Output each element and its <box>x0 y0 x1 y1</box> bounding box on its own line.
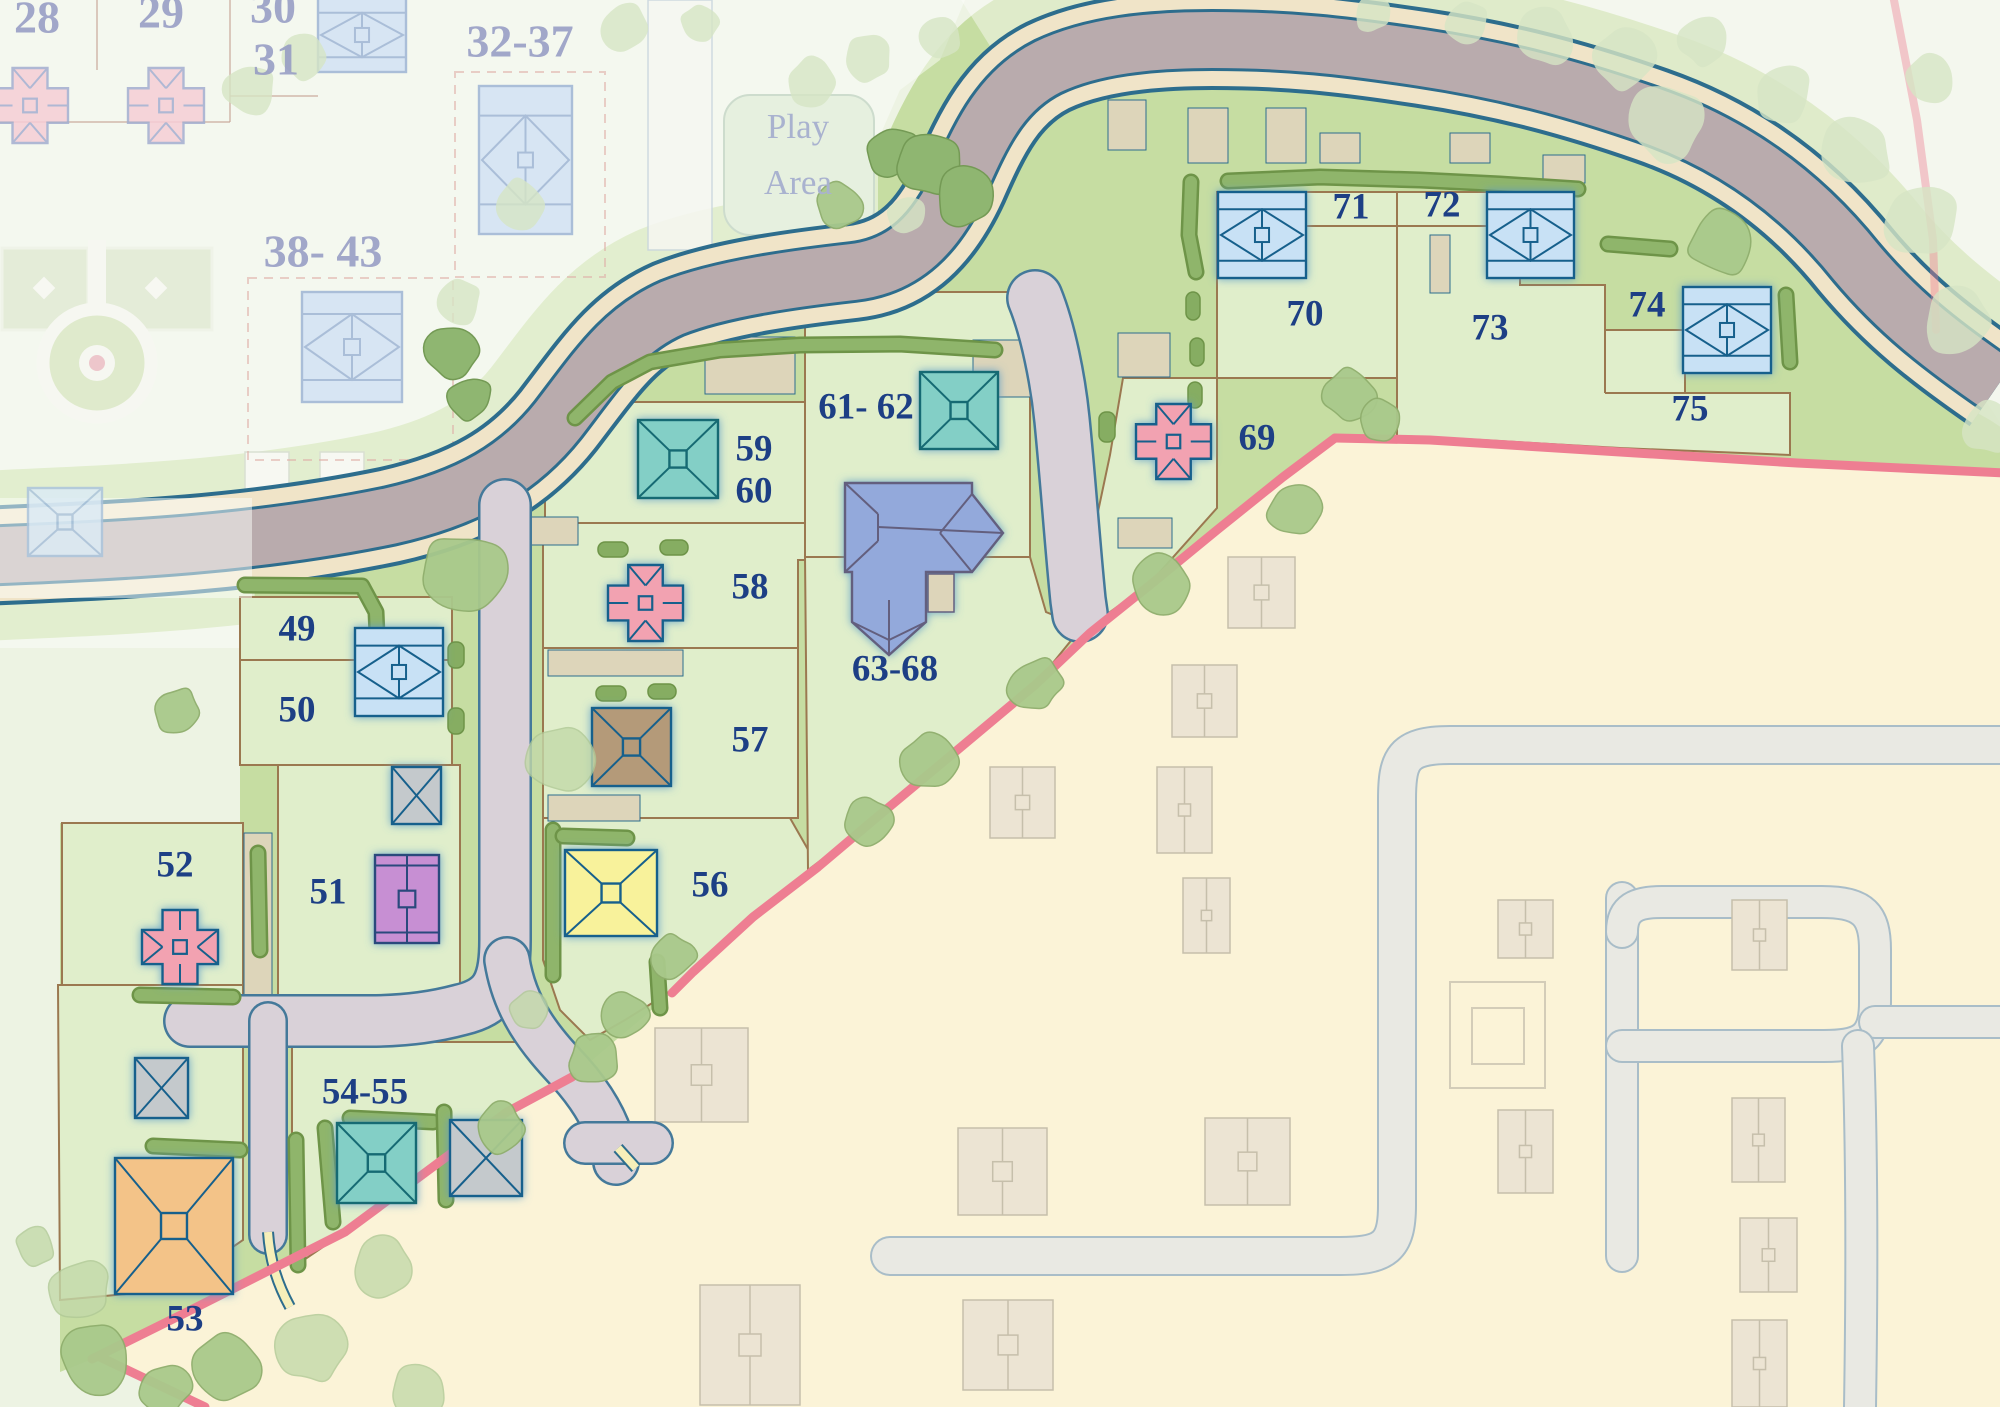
plot-label-49[interactable]: 49 <box>279 608 316 649</box>
future-house <box>963 1300 1053 1390</box>
future-house <box>1740 1218 1797 1292</box>
future-house <box>1732 1320 1787 1407</box>
existing-plot-label-28: 28 <box>14 0 60 43</box>
house-49-50[interactable] <box>355 628 443 716</box>
parking-court <box>1108 100 1146 150</box>
parking-court <box>1266 108 1306 163</box>
house-fadedblue2 <box>28 488 102 556</box>
site-plan-map: 495051525354-55565758596061- 6263-686970… <box>0 0 2000 1407</box>
future-house <box>1205 1118 1290 1205</box>
bush <box>1186 292 1200 320</box>
existing-plot-label-29: 29 <box>138 0 184 38</box>
house-74-75[interactable] <box>1683 287 1771 373</box>
future-house <box>958 1128 1047 1215</box>
existing-plot-label-32-37: 32-37 <box>466 16 573 67</box>
plot-label-50[interactable]: 50 <box>279 689 316 730</box>
future-house <box>1157 767 1212 853</box>
parking-court <box>548 650 683 676</box>
future-house <box>1183 878 1230 953</box>
house-garage-52[interactable] <box>135 1058 188 1118</box>
plot-label-56[interactable]: 56 <box>692 864 729 905</box>
parking-court <box>1320 133 1360 163</box>
plot-label-57[interactable]: 57 <box>732 719 769 760</box>
future-house <box>655 1028 748 1122</box>
plot-label-53[interactable]: 53 <box>167 1298 204 1339</box>
bush <box>596 686 626 701</box>
house-59-60[interactable] <box>638 420 718 498</box>
future-house <box>700 1285 800 1405</box>
future-house <box>1228 557 1295 628</box>
parking-court <box>1118 518 1172 548</box>
play-area-label-line2: Area <box>764 163 832 202</box>
tree <box>569 1033 617 1081</box>
house-72-73[interactable] <box>1487 192 1574 278</box>
house-70-71[interactable] <box>1218 192 1306 278</box>
parking-court <box>1430 235 1450 293</box>
future-house <box>1172 665 1237 737</box>
bush <box>598 542 628 557</box>
plot-label-73[interactable]: 73 <box>1472 307 1509 348</box>
plot-label-54-55[interactable]: 54-55 <box>322 1071 408 1112</box>
parking-court <box>1450 133 1490 163</box>
bush <box>448 642 464 668</box>
plot-label-72[interactable]: 72 <box>1424 184 1461 225</box>
bush <box>1099 412 1115 442</box>
future-house <box>1732 900 1787 970</box>
house-61-62[interactable] <box>920 372 998 449</box>
future-house <box>1732 1098 1785 1182</box>
plot-label-69[interactable]: 69 <box>1239 417 1276 458</box>
parking-court <box>548 795 640 821</box>
site-plan-svg: 495051525354-55565758596061- 6263-686970… <box>0 0 2000 1407</box>
future-house <box>1498 900 1553 958</box>
bush <box>1190 338 1204 366</box>
existing-plot-label-30: 30 <box>250 0 296 33</box>
plot-label-74[interactable]: 74 <box>1629 284 1666 325</box>
existing-plot-label-31: 31 <box>253 34 299 85</box>
parking-court <box>1118 333 1170 377</box>
house-51[interactable] <box>375 855 439 943</box>
plot-label-58[interactable]: 58 <box>732 566 769 607</box>
play-area-label-line1: Play <box>767 107 830 146</box>
bush <box>660 540 688 555</box>
plot-label-59[interactable]: 59 <box>736 428 773 469</box>
bush <box>448 708 464 734</box>
future-house <box>1498 1110 1553 1193</box>
plot-label-71[interactable]: 71 <box>1333 186 1370 227</box>
bush <box>648 684 676 699</box>
plot-label-51[interactable]: 51 <box>310 871 347 912</box>
plot-label-63-68[interactable]: 63-68 <box>852 648 938 689</box>
future-house <box>990 767 1055 838</box>
house-53[interactable] <box>115 1158 233 1294</box>
house-fadedblue <box>318 0 406 72</box>
parking-court <box>1188 108 1228 163</box>
house-garage-50[interactable] <box>392 767 441 824</box>
house-54-55[interactable] <box>337 1123 416 1203</box>
existing-plot-label-38-43: 38- 43 <box>264 226 383 277</box>
plot-label-75[interactable]: 75 <box>1672 388 1709 429</box>
plot-label-60[interactable]: 60 <box>736 470 773 511</box>
plot-label-70[interactable]: 70 <box>1287 293 1324 334</box>
house-fadedblue <box>302 292 402 402</box>
plot-label-61-62[interactable]: 61- 62 <box>818 386 914 427</box>
house-57[interactable] <box>592 708 671 786</box>
plot-label-52[interactable]: 52 <box>157 844 194 885</box>
house-56[interactable] <box>565 850 657 936</box>
